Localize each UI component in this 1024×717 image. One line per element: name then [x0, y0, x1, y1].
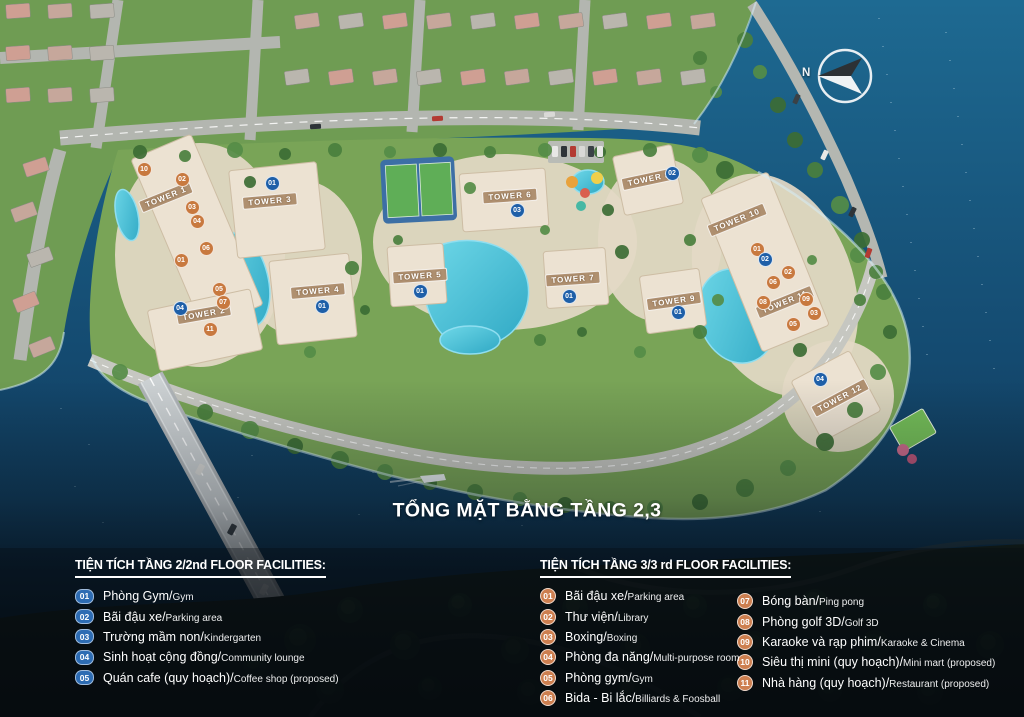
legend-item-label: Sinh hoạt cộng đồng/Community lounge	[103, 648, 305, 666]
legend-item-label: Phòng golf 3D/Golf 3D	[762, 613, 879, 631]
legend-item: 08 Phòng golf 3D/Golf 3D	[737, 611, 995, 631]
legend-item: 07 Bóng bàn/Ping pong	[737, 591, 995, 611]
legend-item-number: 08	[737, 614, 753, 630]
legend-item-label: Phòng đa năng/Multi-purpose room	[565, 648, 739, 666]
legend-item-number: 04	[540, 649, 556, 665]
legend-item: 01 Phòng Gym/Gym	[75, 586, 339, 606]
legend-item-label: Trường mầm non/Kindergarten	[103, 628, 261, 646]
legend-item-label: Phòng Gym/Gym	[103, 587, 194, 605]
legend-item-label: Siêu thị mini (quy hoạch)/Mini mart (pro…	[762, 653, 995, 671]
legend-item: 02 Thư viện/Library	[540, 606, 737, 626]
page-title: TỔNG MẶT BẰNG TẦNG 2,3	[393, 500, 662, 523]
legend-floor3-col2: 07 Bóng bàn/Ping pong 08 Phòng golf 3D/G…	[737, 586, 995, 708]
legend-floor2-header: TIỆN TÍCH TẦNG 2/2nd FLOOR FACILITIES:	[75, 558, 326, 578]
masterplan-poster: TOWER 1TOWER 2TOWER 3TOWER 4TOWER 5TOWER…	[0, 0, 1024, 717]
tennis-courts	[380, 156, 457, 224]
legend-item-label: Phòng gym/Gym	[565, 669, 653, 687]
legend-floor2-list: 01 Phòng Gym/Gym 02 Bãi đậu xe/Parking a…	[75, 586, 339, 688]
legend-item-label: Bóng bàn/Ping pong	[762, 592, 864, 610]
legend-item-label: Thư viện/Library	[565, 608, 648, 626]
legend-item-number: 06	[540, 690, 556, 706]
legend-item: 01 Bãi đậu xe/Parking area	[540, 586, 737, 606]
legend-item-label: Boxing/Boxing	[565, 628, 637, 646]
legend-item: 04 Sinh hoạt cộng đồng/Community lounge	[75, 647, 339, 667]
legend-item-label: Quán cafe (quy hoạch)/Coffee shop (propo…	[103, 669, 339, 687]
legend-item-number: 05	[75, 670, 94, 685]
legend-item-label: Nhà hàng (quy hoạch)/Restaurant (propose…	[762, 674, 989, 692]
legend-item-number: 04	[75, 650, 94, 665]
compass-north-label: N	[802, 67, 810, 79]
legend-item-number: 09	[737, 634, 753, 650]
compass-graphic	[803, 46, 885, 108]
legend-floor2: TIỆN TÍCH TẦNG 2/2nd FLOOR FACILITIES: 0…	[75, 556, 339, 688]
legend-item-number: 02	[75, 609, 94, 624]
legend-item-number: 10	[737, 654, 753, 670]
legend-item-number: 03	[540, 629, 556, 645]
legend-item: 02 Bãi đậu xe/Parking area	[75, 606, 339, 626]
legend-floor3-col1: 01 Bãi đậu xe/Parking area 02 Thư viện/L…	[540, 586, 737, 708]
legend-item-number: 11	[737, 675, 753, 691]
legend-item: 06 Bida - Bi lắc/Billiards & Foosball	[540, 688, 737, 708]
legend-item: 09 Karaoke và rạp phim/Karaoke & Cinema	[737, 632, 995, 652]
legend-item: 11 Nhà hàng (quy hoạch)/Restaurant (prop…	[737, 673, 995, 693]
legend-item-number: 01	[540, 588, 556, 604]
legend-item-number: 07	[737, 593, 753, 609]
legend-item-number: 05	[540, 670, 556, 686]
legend-item-label: Bida - Bi lắc/Billiards & Foosball	[565, 689, 720, 707]
legend-floor3: TIỆN TÍCH TẦNG 3/3 rd FLOOR FACILITIES: …	[540, 556, 995, 708]
legend-item: 10 Siêu thị mini (quy hoạch)/Mini mart (…	[737, 652, 995, 672]
legend-item: 03 Trường mầm non/Kindergarten	[75, 627, 339, 647]
legend-item-label: Bãi đậu xe/Parking area	[565, 587, 684, 605]
legend-floor3-columns: 01 Bãi đậu xe/Parking area 02 Thư viện/L…	[540, 586, 995, 708]
legend-item: 03 Boxing/Boxing	[540, 627, 737, 647]
legend-item-number: 03	[75, 629, 94, 644]
compass: N	[803, 46, 885, 108]
legend-item-number: 01	[75, 589, 94, 604]
legend-item-number: 02	[540, 609, 556, 625]
legend-item: 05 Phòng gym/Gym	[540, 668, 737, 688]
legend-item-label: Bãi đậu xe/Parking area	[103, 608, 222, 626]
legend-item-label: Karaoke và rạp phim/Karaoke & Cinema	[762, 633, 965, 651]
legend-item: 04 Phòng đa năng/Multi-purpose room	[540, 647, 737, 667]
legend-floor3-header: TIỆN TÍCH TẦNG 3/3 rd FLOOR FACILITIES:	[540, 558, 791, 578]
legend-item: 05 Quán cafe (quy hoạch)/Coffee shop (pr…	[75, 668, 339, 688]
